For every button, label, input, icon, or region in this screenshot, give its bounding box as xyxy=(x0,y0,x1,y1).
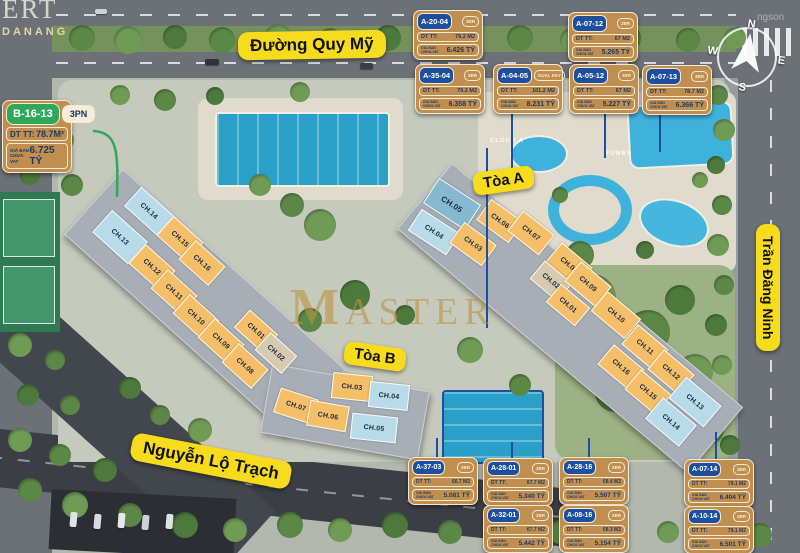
card-header: B-16-13 3PN xyxy=(6,103,68,125)
area-row: DT TT: 79.2 M2 xyxy=(419,86,481,96)
unit-card-A-07-12[interactable]: A-07-12 2BR DT TT: 67 M2 GIÁ BÁN CHƯA VA… xyxy=(568,12,638,62)
unit-card-A-10-14[interactable]: A-10-14 3BR DT TT: 79.1 M2 GIÁ BÁN CHƯA … xyxy=(684,506,754,553)
price-label: GIÁ BÁN CHƯA VAT xyxy=(692,493,710,501)
price-label: GIÁ BÁN CHƯA VAT xyxy=(577,100,595,108)
area-row: DT TT: 79.1 M2 xyxy=(688,526,750,536)
price-label: GIÁ BÁN CHƯA VAT xyxy=(416,491,434,499)
price-value: 6.358 TỶ xyxy=(449,101,477,108)
area-label: DT TT: xyxy=(567,527,582,533)
area-value: 67.7 M2 xyxy=(527,480,545,486)
price-label-line2: CHƯA VAT xyxy=(692,544,710,548)
unit-code[interactable]: A-04-05 xyxy=(497,67,532,84)
bedroom-badge: 3BR xyxy=(733,511,750,522)
area-row: DT TT: 67 M2 xyxy=(573,86,635,96)
unit-code[interactable]: A-28-01 xyxy=(487,461,520,476)
area-label: DT TT: xyxy=(10,130,34,139)
unit-code[interactable]: A-08-16 xyxy=(563,508,596,523)
bedroom-badge: 2BR xyxy=(532,463,549,474)
unit-code[interactable]: A-07-13 xyxy=(646,68,681,85)
area-label: DT TT: xyxy=(491,480,506,486)
bedroom-badge: 2BR xyxy=(608,462,625,473)
unit-code[interactable]: A-32-01 xyxy=(487,508,520,523)
price-label-line2: CHƯA VAT xyxy=(577,104,595,108)
street-name: Đường Quy Mỹ xyxy=(250,34,374,55)
area-label: DT TT: xyxy=(577,88,594,94)
area-value: 66.7 M2 xyxy=(452,479,470,485)
price-value: 5.227 TỶ xyxy=(603,101,631,108)
price-label: GIÁ BÁN CHƯA VAT xyxy=(567,491,585,499)
card-header: A-35-04 3BR xyxy=(419,67,481,84)
price-row: GIÁ BÁN CHƯA VAT 6.366 TỶ xyxy=(646,99,708,111)
unit-card-A-32-01[interactable]: A-32-01 2BR DT TT: 67.7 M2 GIÁ BÁN CHƯA … xyxy=(483,505,553,553)
bedroom-badge: DUAL KEY xyxy=(534,70,565,81)
unit-card-A-08-16[interactable]: A-08-16 2BR DT TT: 68.3 M2 GIÁ BÁN CHƯA … xyxy=(559,505,629,553)
area-label: DT TT: xyxy=(421,34,438,40)
bedroom-badge: 2BR xyxy=(617,18,634,29)
lazy-river xyxy=(548,175,632,245)
price-label: GIÁ BÁN CHƯA VAT xyxy=(491,539,509,547)
card-header: A-32-01 2BR xyxy=(487,508,549,523)
bedroom-badge: 2BR xyxy=(618,70,635,81)
price-label: GIÁ BÁN CHƯA VAT xyxy=(501,100,519,108)
price-label-line2: CHƯA VAT xyxy=(423,104,441,108)
area-row: DT TT: 79.1 M2 xyxy=(688,479,750,489)
price-label-line2: CHƯA VAT xyxy=(567,543,585,547)
toa-b-unit-CH.05[interactable]: CH.05 xyxy=(350,413,398,444)
unit-card-A-28-01[interactable]: A-28-01 2BR DT TT: 67.7 M2 GIÁ BÁN CHƯA … xyxy=(483,458,553,506)
unit-card-A-07-14[interactable]: A-07-14 3BR DT TT: 79.1 M2 GIÁ BÁN CHƯA … xyxy=(684,459,754,507)
price-row: GIÁ BÁN CHƯA VAT 8.231 TỶ xyxy=(497,98,559,110)
bedroom-badge: 2BR xyxy=(608,510,625,521)
price-value: 6.426 TỶ xyxy=(447,47,475,54)
price-value: 5.154 TỶ xyxy=(595,540,621,547)
price-value: 5.340 TỶ xyxy=(519,493,545,500)
card-header: A-04-05 DUAL KEY xyxy=(497,67,559,84)
price-label-line2: CHƯA VAT xyxy=(692,497,710,501)
tennis-court-2 xyxy=(3,266,55,324)
bedroom-badge: 3BR xyxy=(691,71,708,82)
unit-card-A-37-03[interactable]: A-37-03 2BR DT TT: 66.7 M2 GIÁ BÁN CHƯA … xyxy=(408,457,478,505)
area-label: DT TT: xyxy=(423,88,440,94)
price-row: GIÁ BÁN CHƯA VAT 5.081 TỶ xyxy=(412,489,474,501)
price-row: GIÁ BÁN CHƯA VAT 6.404 TỶ xyxy=(688,491,750,503)
area-row: DT TT: 78.7 M2 xyxy=(646,87,708,97)
area-value: 67 M2 xyxy=(616,88,631,94)
area-value: 68.3 M2 xyxy=(603,527,621,533)
tower-name: Tòa B xyxy=(353,345,397,368)
tennis-court-1 xyxy=(3,199,55,257)
price-label-line2: CHƯA VAT xyxy=(650,105,668,109)
price-label: GIÁ BÁN CHƯA VAT xyxy=(567,539,585,547)
price-label: GIÁ BÁN CHƯA VAT xyxy=(692,540,710,548)
road-top-median xyxy=(0,26,800,52)
street-label-quy-my: Đường Quy Mỹ xyxy=(238,30,386,61)
area-value: 79.1 M2 xyxy=(728,481,746,487)
card-header: A-07-14 3BR xyxy=(688,462,750,477)
street-label-tran-dang-ninh: Trần Đăng Ninh xyxy=(756,224,780,351)
area-label: DT TT: xyxy=(692,481,707,487)
toa-b-unit-CH.03[interactable]: CH.03 xyxy=(331,372,373,402)
area-value: 78.7 M2 xyxy=(684,89,704,95)
area-value: 78.7M² xyxy=(36,129,64,139)
area-row: DT TT: 101.2 M2 xyxy=(497,86,559,96)
price-value: 5.081 TỶ xyxy=(444,492,470,499)
tower-name: Tòa A xyxy=(482,169,525,192)
price-label: GIÁ BÁN CHƯA VAT xyxy=(650,101,668,109)
price-value: 8.231 TỶ xyxy=(527,101,555,108)
unit-card-A-05-12[interactable]: A-05-12 2BR DT TT: 67 M2 GIÁ BÁN CHƯA VA… xyxy=(569,64,639,114)
unit-card-A-20-04[interactable]: A-20-04 3BR DT TT: 79.2 M2 GIÁ BÁN CHƯA … xyxy=(413,10,483,60)
price-row: GIÁ BÁN CHƯA VAT 6.501 TỶ xyxy=(688,538,750,550)
price-value: 5.507 TỶ xyxy=(595,492,621,499)
main-pool xyxy=(215,112,390,187)
area-row: DT TT: 68.3 M2 xyxy=(563,525,625,535)
lane-marking xyxy=(0,62,800,64)
toa-b-unit-CH.04[interactable]: CH.04 xyxy=(368,381,410,411)
area-row: DT TT: 68.4 M2 xyxy=(563,477,625,487)
waterpark-label-cloud: CLOUD A xyxy=(490,138,524,144)
price-value: 6.725 TỶ xyxy=(29,145,64,167)
area-value: 67.7 M2 xyxy=(527,527,545,533)
area-label: DT TT: xyxy=(650,89,667,95)
area-value: 68.4 M2 xyxy=(603,479,621,485)
unit-code[interactable]: A-37-03 xyxy=(412,460,445,475)
area-label: DT TT: xyxy=(576,36,593,42)
card-header: A-07-13 3BR xyxy=(646,68,708,85)
unit-card-A-28-16[interactable]: A-28-16 2BR DT TT: 68.4 M2 GIÁ BÁN CHƯA … xyxy=(559,457,629,505)
bedroom-badge: 3PN xyxy=(62,105,96,123)
area-label: DT TT: xyxy=(692,528,707,534)
unit-code[interactable]: A-28-16 xyxy=(563,460,596,475)
unit-code[interactable]: A-10-14 xyxy=(688,509,721,524)
area-label: DT TT: xyxy=(491,527,506,533)
bedroom-badge: 3BR xyxy=(733,464,750,475)
area-row: DT TT: 66.7 M2 xyxy=(412,477,474,487)
price-label-line2: CHƯA VAT xyxy=(567,495,585,499)
area-label: DT TT: xyxy=(567,479,582,485)
area-row: DT TT: 78.7M² xyxy=(6,127,68,141)
card-header: A-05-12 2BR xyxy=(573,67,635,84)
unit-code[interactable]: A-07-14 xyxy=(688,462,721,477)
price-label: GIÁ BÁN CHƯA VAT xyxy=(423,100,441,108)
area-value: 79.2 M2 xyxy=(457,88,477,94)
price-value: 6.404 TỶ xyxy=(720,494,746,501)
bedroom-badge: 3BR xyxy=(464,70,481,81)
price-row: GIÁ BÁN CHƯA VAT 5.227 TỶ xyxy=(573,98,635,110)
area-value: 101.2 M2 xyxy=(532,88,555,94)
price-label: GIÁ BÁN CHƯA VAT xyxy=(10,148,29,164)
price-row: GIÁ BÁN CHƯA VAT 5.507 TỶ xyxy=(563,489,625,501)
area-row: DT TT: 67.7 M2 xyxy=(487,478,549,488)
tree xyxy=(657,521,679,543)
price-row: GIÁ BÁN CHƯA VAT 6.426 TỶ xyxy=(417,44,479,56)
parking-lot xyxy=(49,489,237,553)
card-header: A-08-16 2BR xyxy=(563,508,625,523)
unit-card-A-04-05[interactable]: A-04-05 DUAL KEY DT TT: 101.2 M2 GIÁ BÁN… xyxy=(493,64,563,114)
card-header: A-37-03 2BR xyxy=(412,460,474,475)
price-label: GIÁ BÁN CHƯA VAT xyxy=(576,48,594,56)
unit-code[interactable]: A-20-04 xyxy=(417,13,452,30)
price-label-line2: CHƯA VAT xyxy=(501,104,519,108)
price-row: GIÁ BÁN CHƯA VAT 6.725 TỶ xyxy=(6,143,68,169)
price-value: 6.501 TỶ xyxy=(720,541,746,548)
area-row: DT TT: 67.7 M2 xyxy=(487,525,549,535)
price-row: GIÁ BÁN CHƯA VAT 5.154 TỶ xyxy=(563,537,625,549)
price-label-line2: CHƯA VAT xyxy=(421,50,439,54)
card-header: A-07-12 2BR xyxy=(572,15,634,32)
area-value: 67 M2 xyxy=(615,36,630,42)
area-label: DT TT: xyxy=(501,88,518,94)
price-row: GIÁ BÁN CHƯA VAT 6.358 TỶ xyxy=(419,98,481,110)
unit-card-A-35-04[interactable]: A-35-04 3BR DT TT: 79.2 M2 GIÁ BÁN CHƯA … xyxy=(415,64,485,114)
waterpark-label-funny: FUNNY xyxy=(606,151,632,157)
price-label: GIÁ BÁN CHƯA VAT xyxy=(491,492,509,500)
price-value: 6.366 TỶ xyxy=(676,102,704,109)
street-name: Trần Đăng Ninh xyxy=(760,236,776,339)
area-value: 79.2 M2 xyxy=(455,34,475,40)
card-header: A-28-01 2BR xyxy=(487,461,549,476)
price-value: 5.442 TỶ xyxy=(519,540,545,547)
price-row: GIÁ BÁN CHƯA VAT 5.340 TỶ xyxy=(487,490,549,502)
unit-code[interactable]: A-35-04 xyxy=(419,67,454,84)
lap-pool xyxy=(442,390,544,464)
price-label-line2: CHƯA VAT xyxy=(416,495,434,499)
card-header: A-10-14 3BR xyxy=(688,509,750,524)
lane-marking xyxy=(0,14,800,16)
bedroom-badge: 3BR xyxy=(462,16,479,27)
price-label-line2: CHƯA VAT xyxy=(491,543,509,547)
compass: N S W E xyxy=(704,14,790,100)
area-row: DT TT: 79.2 M2 xyxy=(417,32,479,42)
area-label: DT TT: xyxy=(416,479,431,485)
unit-card-B-16-13[interactable]: B-16-13 3PN DT TT: 78.7M² GIÁ BÁN CHƯA V… xyxy=(2,100,72,173)
unit-card-A-07-13[interactable]: A-07-13 3BR DT TT: 78.7 M2 GIÁ BÁN CHƯA … xyxy=(642,65,712,115)
unit-code[interactable]: A-05-12 xyxy=(573,67,608,84)
area-value: 79.1 M2 xyxy=(728,528,746,534)
price-label-line2: CHƯA VAT xyxy=(10,153,29,164)
price-row: GIÁ BÁN CHƯA VAT 5.442 TỶ xyxy=(487,537,549,549)
price-label-line2: CHƯA VAT xyxy=(576,52,594,56)
price-value: 5.265 TỶ xyxy=(602,49,630,56)
site-plan-viewer: CLOUD A FUNNY CH.05CH.04CH.03CH.06CH.07C… xyxy=(0,0,800,553)
card-header: A-20-04 3BR xyxy=(417,13,479,30)
price-label: GIÁ BÁN CHƯA VAT xyxy=(421,46,439,54)
price-label-line2: CHƯA VAT xyxy=(491,496,509,500)
price-row: GIÁ BÁN CHƯA VAT 5.265 TỶ xyxy=(572,46,634,58)
bedroom-badge: 2BR xyxy=(532,510,549,521)
unit-code[interactable]: A-07-12 xyxy=(572,15,607,32)
unit-code[interactable]: B-16-13 xyxy=(6,103,60,125)
compass-needle xyxy=(704,14,790,100)
area-row: DT TT: 67 M2 xyxy=(572,34,634,44)
card-header: A-28-16 2BR xyxy=(563,460,625,475)
bedroom-badge: 2BR xyxy=(457,462,474,473)
